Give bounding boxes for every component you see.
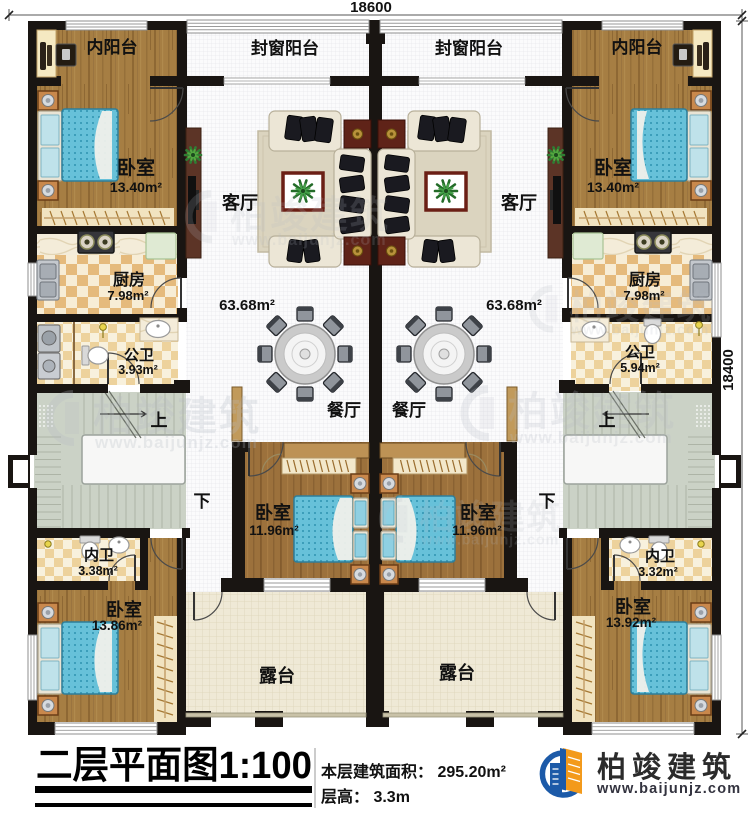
svg-text:18400: 18400 [720,349,737,391]
svg-text:11.96m²: 11.96m² [452,523,502,538]
svg-text:卧室: 卧室 [594,156,632,179]
svg-text:封窗阳台: 封窗阳台 [251,38,319,58]
svg-text:上: 上 [151,411,168,430]
svg-text:卧室: 卧室 [460,502,496,523]
svg-text:www.baijunjz.com: www.baijunjz.com [596,781,741,797]
svg-text:卧室: 卧室 [255,502,291,523]
svg-text:11.96m²: 11.96m² [249,523,299,538]
svg-text:7.98m²: 7.98m² [623,288,665,303]
svg-text:二层平面图1:100: 二层平面图1:100 [36,745,312,787]
svg-text:厨房: 厨房 [113,270,145,289]
svg-text:63.68m²: 63.68m² [486,297,542,314]
svg-text:63.68m²: 63.68m² [219,297,275,314]
svg-text:www.baijunjz.com: www.baijunjz.com [570,322,709,338]
svg-text:卧室: 卧室 [106,599,142,620]
svg-text:内阳台: 内阳台 [612,37,663,57]
svg-text:上: 上 [599,411,616,430]
svg-text:3.38m²: 3.38m² [78,564,118,578]
svg-text:www.baijunjz.com: www.baijunjz.com [509,428,673,447]
svg-text:5.94m²: 5.94m² [620,361,660,375]
svg-text:露台: 露台 [259,665,295,686]
svg-text:本层建筑面积： 295.20m²: 本层建筑面积： 295.20m² [321,762,506,781]
svg-text:13.86m²: 13.86m² [92,618,143,633]
svg-text:层高： 3.3m: 层高： 3.3m [321,787,410,806]
svg-text:下: 下 [194,492,211,511]
svg-text:公卫: 公卫 [124,347,154,364]
svg-text:露台: 露台 [439,662,475,683]
svg-text:公卫: 公卫 [625,344,655,361]
svg-text:13.92m²: 13.92m² [606,615,657,630]
svg-text:13.40m²: 13.40m² [587,179,639,195]
svg-text:客厅: 客厅 [501,192,537,213]
svg-text:7.98m²: 7.98m² [107,288,149,303]
svg-text:3.93m²: 3.93m² [118,363,158,377]
svg-text:下: 下 [539,492,556,511]
svg-text:厨房: 厨房 [629,270,661,289]
svg-text:www.baijunjz.com: www.baijunjz.com [231,231,387,249]
svg-text:内阳台: 内阳台 [87,37,138,57]
svg-text:www.baijunjz.com: www.baijunjz.com [94,433,258,452]
svg-text:餐厅: 餐厅 [392,400,426,420]
svg-text:餐厅: 餐厅 [327,400,361,420]
svg-text:13.40m²: 13.40m² [110,179,162,195]
svg-text:3.32m²: 3.32m² [638,565,678,579]
svg-text:客厅: 客厅 [222,192,258,213]
svg-text:18600: 18600 [350,0,392,16]
svg-text:卧室: 卧室 [117,156,155,179]
svg-text:卧室: 卧室 [615,596,651,617]
svg-text:柏竣建筑: 柏竣建筑 [597,750,737,784]
svg-text:内卫: 内卫 [645,547,675,565]
svg-text:封窗阳台: 封窗阳台 [435,38,503,58]
svg-text:内卫: 内卫 [84,546,114,564]
